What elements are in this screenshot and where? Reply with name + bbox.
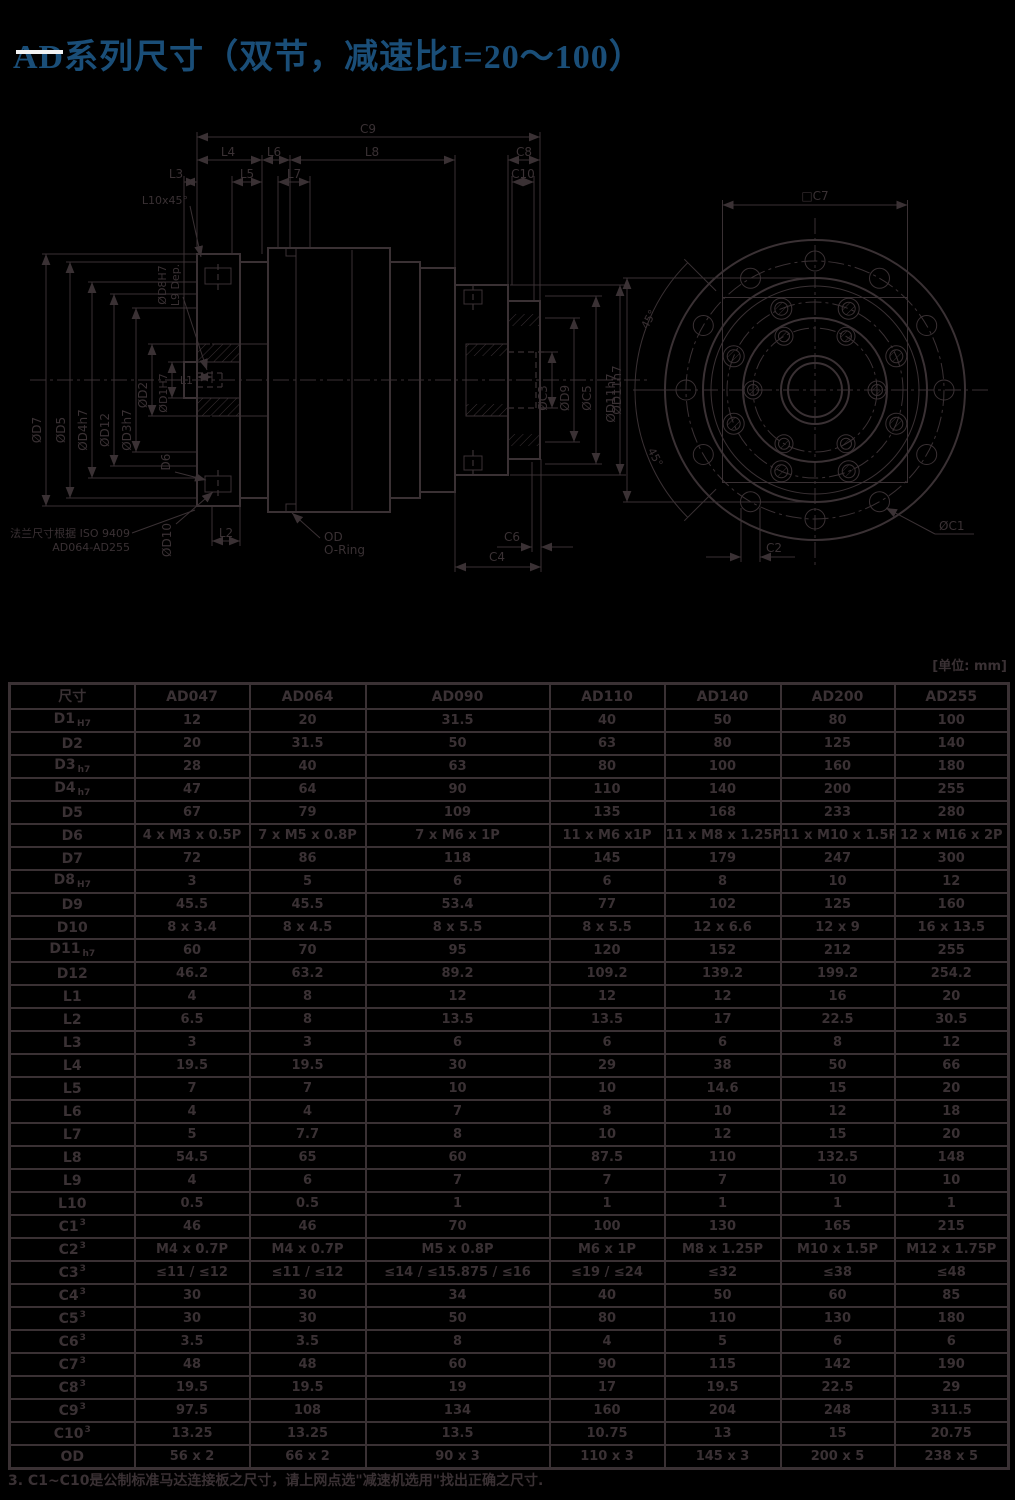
row-header: C73 bbox=[10, 1353, 135, 1376]
dim-label-d2: ØD2 bbox=[136, 382, 150, 408]
table-row: L333666812 bbox=[10, 1031, 1009, 1054]
table-cell: M8 x 1.25P bbox=[665, 1238, 781, 1261]
table-row: D1246.263.289.2109.2139.2199.2254.2 bbox=[10, 962, 1009, 985]
table-cell: 12 bbox=[135, 709, 250, 732]
dim-label-l6: L6 bbox=[267, 145, 281, 159]
table-cell: 132.5 bbox=[781, 1146, 895, 1169]
table-body: D1H7122031.5405080100D22031.550638012514… bbox=[10, 709, 1009, 1469]
dim-label-c6: C6 bbox=[504, 530, 520, 544]
row-header: L6 bbox=[10, 1100, 135, 1123]
column-header-model: AD064 bbox=[250, 684, 366, 710]
dim-label-c2: C2 bbox=[766, 541, 782, 555]
row-header: D12 bbox=[10, 962, 135, 985]
table-cell: 13.5 bbox=[550, 1008, 665, 1031]
dim-label-c5: ØC5 bbox=[580, 385, 594, 410]
table-cell: 15 bbox=[781, 1422, 895, 1445]
table-cell: 63 bbox=[550, 732, 665, 755]
table-cell: 160 bbox=[550, 1399, 665, 1422]
oring-label-oring: O-Ring bbox=[324, 543, 365, 557]
table-cell: 30 bbox=[250, 1284, 366, 1307]
table-cell: 8 bbox=[250, 985, 366, 1008]
oring-label-od: OD bbox=[324, 530, 343, 544]
table-row: D64 x M3 x 0.5P7 x M5 x 0.8P7 x M6 x 1P1… bbox=[10, 824, 1009, 847]
row-header: D11h7 bbox=[10, 939, 135, 962]
table-cell: 4 bbox=[550, 1330, 665, 1353]
table-cell: 50 bbox=[781, 1054, 895, 1077]
table-cell: 19 bbox=[366, 1376, 550, 1399]
table-cell: 8 x 4.5 bbox=[250, 916, 366, 939]
table-cell: 87.5 bbox=[550, 1146, 665, 1169]
table-cell: 152 bbox=[665, 939, 781, 962]
table-row: L100.50.511111 bbox=[10, 1192, 1009, 1215]
front-view: □C7 ØD11h7 45° 45° C2 ØC1 bbox=[610, 189, 988, 565]
dim-label-c4: C4 bbox=[489, 550, 505, 564]
table-cell: 19.5 bbox=[250, 1054, 366, 1077]
row-header: D2 bbox=[10, 732, 135, 755]
table-cell: 11 x M10 x 1.5P bbox=[781, 824, 895, 847]
table-cell: 8 x 5.5 bbox=[550, 916, 665, 939]
dim-label-l3: L3 bbox=[169, 167, 183, 181]
dim-label-d11-front: ØD11h7 bbox=[610, 365, 624, 414]
table-cell: 125 bbox=[781, 732, 895, 755]
footnote: 3. C1~C10是公制标准马达连接板之尺寸，请上网点选"减速机选用"找出正确之… bbox=[8, 1470, 543, 1490]
row-header: L4 bbox=[10, 1054, 135, 1077]
table-cell: ≤11 / ≤12 bbox=[250, 1261, 366, 1284]
table-cell: 31.5 bbox=[250, 732, 366, 755]
row-header: D1H7 bbox=[10, 709, 135, 732]
table-cell: 95 bbox=[366, 939, 550, 962]
row-header: C33 bbox=[10, 1261, 135, 1284]
table-cell: 179 bbox=[665, 847, 781, 870]
flange-note-line1: 法兰尺寸根据 ISO 9409 bbox=[10, 526, 130, 540]
table-cell: 66 x 2 bbox=[250, 1445, 366, 1469]
table-cell: 1 bbox=[550, 1192, 665, 1215]
table-cell: 47 bbox=[135, 778, 250, 801]
table-cell: 10 bbox=[665, 1100, 781, 1123]
table-cell: 12 x 6.6 bbox=[665, 916, 781, 939]
table-cell: 13.5 bbox=[366, 1008, 550, 1031]
table-cell: M6 x 1P bbox=[550, 1238, 665, 1261]
table-cell: 50 bbox=[665, 1284, 781, 1307]
table-cell: 8 bbox=[250, 1008, 366, 1031]
table-cell: 14.6 bbox=[665, 1077, 781, 1100]
table-cell: 0.5 bbox=[135, 1192, 250, 1215]
column-header-dimension: 尺寸 bbox=[10, 684, 135, 710]
table-cell: 13.25 bbox=[135, 1422, 250, 1445]
column-header-model: AD140 bbox=[665, 684, 781, 710]
row-header: L10 bbox=[10, 1192, 135, 1215]
table-cell: 20 bbox=[250, 709, 366, 732]
table-cell: ≤11 / ≤12 bbox=[135, 1261, 250, 1284]
table-cell: 7 x M6 x 1P bbox=[366, 824, 550, 847]
table-cell: 64 bbox=[250, 778, 366, 801]
table-cell: 89.2 bbox=[366, 962, 550, 985]
table-cell: 7 bbox=[135, 1077, 250, 1100]
table-cell: 212 bbox=[781, 939, 895, 962]
table-cell: 7 bbox=[665, 1169, 781, 1192]
table-cell: M10 x 1.5P bbox=[781, 1238, 895, 1261]
table-cell: 6 bbox=[550, 870, 665, 893]
table-cell: 6 bbox=[250, 1169, 366, 1192]
table-row: C13464670100130165215 bbox=[10, 1215, 1009, 1238]
row-header: C103 bbox=[10, 1422, 135, 1445]
row-header: L9 bbox=[10, 1169, 135, 1192]
row-header: OD bbox=[10, 1445, 135, 1469]
table-cell: 7.7 bbox=[250, 1123, 366, 1146]
table-cell: 46.2 bbox=[135, 962, 250, 985]
table-cell: 1 bbox=[895, 1192, 1009, 1215]
table-cell: 1 bbox=[665, 1192, 781, 1215]
table-cell: 108 bbox=[250, 1399, 366, 1422]
table-cell: 50 bbox=[366, 732, 550, 755]
table-cell: ≤48 bbox=[895, 1261, 1009, 1284]
table-cell: ≤14 / ≤15.875 / ≤16 bbox=[366, 1261, 550, 1284]
table-row: D108 x 3.48 x 4.58 x 5.58 x 5.512 x 6.61… bbox=[10, 916, 1009, 939]
table-cell: 110 bbox=[665, 1146, 781, 1169]
table-row: C23M4 x 0.7PM4 x 0.7PM5 x 0.8PM6 x 1PM8 … bbox=[10, 1238, 1009, 1261]
dim-label-c10: C10 bbox=[511, 167, 535, 181]
table-cell: 200 x 5 bbox=[781, 1445, 895, 1469]
table-cell: 4 bbox=[135, 1169, 250, 1192]
table-cell: 85 bbox=[895, 1284, 1009, 1307]
table-cell: 45.5 bbox=[250, 893, 366, 916]
table-cell: 247 bbox=[781, 847, 895, 870]
table-row: C9397.5108134160204248311.5 bbox=[10, 1399, 1009, 1422]
table-cell: 77 bbox=[550, 893, 665, 916]
table-cell: 148 bbox=[895, 1146, 1009, 1169]
table-cell: 30 bbox=[250, 1307, 366, 1330]
table-cell: 102 bbox=[665, 893, 781, 916]
table-cell: 13 bbox=[665, 1422, 781, 1445]
table-row: C33≤11 / ≤12≤11 / ≤12≤14 / ≤15.875 / ≤16… bbox=[10, 1261, 1009, 1284]
table-cell: 11 x M8 x 1.25P bbox=[665, 824, 781, 847]
table-cell: 17 bbox=[550, 1376, 665, 1399]
table-cell: 30 bbox=[366, 1054, 550, 1077]
table-cell: 12 bbox=[366, 985, 550, 1008]
table-cell: 1 bbox=[781, 1192, 895, 1215]
angle-label-45-upper: 45° bbox=[639, 308, 660, 331]
table-cell: 79 bbox=[250, 801, 366, 824]
dim-label-d9: ØD9 bbox=[558, 385, 572, 411]
table-cell: 22.5 bbox=[781, 1376, 895, 1399]
table-cell: 280 bbox=[895, 801, 1009, 824]
table-cell: M12 x 1.75P bbox=[895, 1238, 1009, 1261]
table-cell: 90 bbox=[550, 1353, 665, 1376]
section-view: C9 L4 L6 L8 C8 L3 L5 L7 C10 L10x45° ØD7 … bbox=[10, 122, 648, 572]
table-cell: 165 bbox=[781, 1215, 895, 1238]
table-cell: 142 bbox=[781, 1353, 895, 1376]
table-row: D56779109135168233280 bbox=[10, 801, 1009, 824]
dim-label-l10: L10x45° bbox=[142, 194, 188, 207]
dim-label-d8h7: ØD8H7 bbox=[156, 265, 169, 304]
column-header-model: AD200 bbox=[781, 684, 895, 710]
table-cell: 50 bbox=[366, 1307, 550, 1330]
catalog-page: AD系列尺寸（双节，减速比I=20～100） bbox=[0, 0, 1015, 1500]
table-cell: 17 bbox=[665, 1008, 781, 1031]
row-header: D9 bbox=[10, 893, 135, 916]
column-header-model: AD255 bbox=[895, 684, 1009, 710]
dim-label-l5: L5 bbox=[240, 167, 254, 181]
table-cell: 29 bbox=[550, 1054, 665, 1077]
table-cell: 70 bbox=[250, 939, 366, 962]
table-cell: 16 x 13.5 bbox=[895, 916, 1009, 939]
table-cell: 60 bbox=[366, 1146, 550, 1169]
table-cell: 238 x 5 bbox=[895, 1445, 1009, 1469]
table-cell: 6 bbox=[366, 1031, 550, 1054]
row-header: L1 bbox=[10, 985, 135, 1008]
oring-groove-bottom bbox=[286, 504, 296, 512]
table-cell: 8 bbox=[665, 870, 781, 893]
table-cell: 3 bbox=[135, 870, 250, 893]
table-row: L419.519.53029385066 bbox=[10, 1054, 1009, 1077]
table-cell: 110 bbox=[550, 778, 665, 801]
table-cell: 168 bbox=[665, 801, 781, 824]
angle-label-45-lower: 45° bbox=[645, 446, 666, 469]
table-cell: 10 bbox=[781, 1169, 895, 1192]
table-cell: 3 bbox=[135, 1031, 250, 1054]
row-header: C63 bbox=[10, 1330, 135, 1353]
table-cell: 12 x M16 x 2P bbox=[895, 824, 1009, 847]
table-cell: 8 x 3.4 bbox=[135, 916, 250, 939]
table-row: L757.7810121520 bbox=[10, 1123, 1009, 1146]
table-cell: 80 bbox=[550, 755, 665, 778]
table-row: C4330303440506085 bbox=[10, 1284, 1009, 1307]
table-cell: 8 x 5.5 bbox=[366, 916, 550, 939]
table-cell: 10 bbox=[550, 1123, 665, 1146]
page-title: AD系列尺寸（双节，减速比I=20～100） bbox=[13, 29, 644, 78]
table-cell: 8 bbox=[366, 1330, 550, 1353]
table-cell: 100 bbox=[895, 709, 1009, 732]
table-cell: 160 bbox=[895, 893, 1009, 916]
table-cell: 255 bbox=[895, 939, 1009, 962]
dim-label-l8: L8 bbox=[365, 145, 379, 159]
table-cell: 10 bbox=[550, 1077, 665, 1100]
table-cell: 233 bbox=[781, 801, 895, 824]
table-row: D945.545.553.477102125160 bbox=[10, 893, 1009, 916]
table-cell: 200 bbox=[781, 778, 895, 801]
table-cell: 6 bbox=[665, 1031, 781, 1054]
table-cell: 12 bbox=[550, 985, 665, 1008]
table-cell: 6 bbox=[366, 870, 550, 893]
table-cell: M4 x 0.7P bbox=[135, 1238, 250, 1261]
table-cell: 109 bbox=[366, 801, 550, 824]
row-header: L5 bbox=[10, 1077, 135, 1100]
row-header: C53 bbox=[10, 1307, 135, 1330]
table-row: C10313.2513.2513.510.75131520.75 bbox=[10, 1422, 1009, 1445]
dim-label-d3h7: ØD3h7 bbox=[120, 409, 134, 451]
dim-label-d10: ØD10 bbox=[160, 523, 174, 557]
title-underline bbox=[16, 50, 63, 54]
section-view-details bbox=[197, 248, 508, 512]
table-cell: 65 bbox=[250, 1146, 366, 1169]
oring-groove-top bbox=[286, 248, 296, 256]
table-row: L26.5813.513.51722.530.5 bbox=[10, 1008, 1009, 1031]
table-cell: 130 bbox=[665, 1215, 781, 1238]
table-cell: 3.5 bbox=[250, 1330, 366, 1353]
dim-label-c8: C8 bbox=[516, 145, 532, 159]
table-row: OD56 x 266 x 290 x 3110 x 3145 x 3200 x … bbox=[10, 1445, 1009, 1469]
table-cell: 134 bbox=[366, 1399, 550, 1422]
table-cell: 7 bbox=[366, 1169, 550, 1192]
dim-label-d1h7: ØD1H7 bbox=[157, 373, 170, 412]
table-cell: 135 bbox=[550, 801, 665, 824]
technical-drawing: C9 L4 L6 L8 C8 L3 L5 L7 C10 L10x45° ØD7 … bbox=[0, 100, 1015, 648]
table-cell: 11 x M6 x1P bbox=[550, 824, 665, 847]
table-cell: 6.5 bbox=[135, 1008, 250, 1031]
row-header: D4h7 bbox=[10, 778, 135, 801]
table-cell: 6 bbox=[895, 1330, 1009, 1353]
table-cell: 8 bbox=[550, 1100, 665, 1123]
table-cell: 5 bbox=[665, 1330, 781, 1353]
table-cell: 45.5 bbox=[135, 893, 250, 916]
table-cell: 28 bbox=[135, 755, 250, 778]
table-cell: M4 x 0.7P bbox=[250, 1238, 366, 1261]
table-cell: 10 bbox=[781, 870, 895, 893]
dim-label-c1: ØC1 bbox=[939, 519, 964, 533]
table-cell: 46 bbox=[250, 1215, 366, 1238]
table-cell: 50 bbox=[665, 709, 781, 732]
table-row: D8H7356681012 bbox=[10, 870, 1009, 893]
table-cell: 100 bbox=[550, 1215, 665, 1238]
table-cell: 4 x M3 x 0.5P bbox=[135, 824, 250, 847]
table-cell: 63 bbox=[366, 755, 550, 778]
dim-label-d7: ØD7 bbox=[30, 417, 44, 443]
table-row: C7348486090115142190 bbox=[10, 1353, 1009, 1376]
table-cell: 1 bbox=[366, 1192, 550, 1215]
row-header: D6 bbox=[10, 824, 135, 847]
table-cell: 19.5 bbox=[135, 1054, 250, 1077]
table-cell: M5 x 0.8P bbox=[366, 1238, 550, 1261]
row-header: D3h7 bbox=[10, 755, 135, 778]
dim-label-d5: ØD5 bbox=[54, 417, 68, 443]
table-cell: 54.5 bbox=[135, 1146, 250, 1169]
table-cell: 80 bbox=[665, 732, 781, 755]
table-cell: 13.25 bbox=[250, 1422, 366, 1445]
table-cell: 38 bbox=[665, 1054, 781, 1077]
table-cell: ≤32 bbox=[665, 1261, 781, 1284]
table-cell: 255 bbox=[895, 778, 1009, 801]
table-cell: 70 bbox=[366, 1215, 550, 1238]
table-cell: 311.5 bbox=[895, 1399, 1009, 1422]
table-cell: 53.4 bbox=[366, 893, 550, 916]
dim-label-c7: □C7 bbox=[801, 189, 828, 203]
table-cell: 29 bbox=[895, 1376, 1009, 1399]
table-cell: 118 bbox=[366, 847, 550, 870]
table-cell: 248 bbox=[781, 1399, 895, 1422]
table-cell: 66 bbox=[895, 1054, 1009, 1077]
table-cell: 60 bbox=[135, 939, 250, 962]
dim-label-l1: L1 bbox=[180, 374, 193, 387]
table-cell: 15 bbox=[781, 1077, 895, 1100]
dim-label-c3: ØC3 bbox=[536, 385, 550, 410]
table-row: D77286118145179247300 bbox=[10, 847, 1009, 870]
table-row: L9467771010 bbox=[10, 1169, 1009, 1192]
table-cell: 140 bbox=[665, 778, 781, 801]
table-cell: 63.2 bbox=[250, 962, 366, 985]
table-row: D1H7122031.5405080100 bbox=[10, 709, 1009, 732]
table-cell: 4 bbox=[135, 1100, 250, 1123]
table-cell: 12 bbox=[665, 985, 781, 1008]
table-cell: 10.75 bbox=[550, 1422, 665, 1445]
table-cell: 12 x 9 bbox=[781, 916, 895, 939]
row-header: D7 bbox=[10, 847, 135, 870]
column-header-model: AD090 bbox=[366, 684, 550, 710]
table-cell: 204 bbox=[665, 1399, 781, 1422]
table-cell: 7 bbox=[550, 1169, 665, 1192]
table-cell: 160 bbox=[781, 755, 895, 778]
row-header: L3 bbox=[10, 1031, 135, 1054]
row-header: C13 bbox=[10, 1215, 135, 1238]
table-header-row: 尺寸AD047AD064AD090AD110AD140AD200AD255 bbox=[10, 684, 1009, 710]
flange-note-line2: AD064-AD255 bbox=[52, 541, 130, 554]
table-cell: 0.5 bbox=[250, 1192, 366, 1215]
table-cell: 60 bbox=[781, 1284, 895, 1307]
table-cell: 20 bbox=[895, 1123, 1009, 1146]
table-row: C5330305080110130180 bbox=[10, 1307, 1009, 1330]
table-cell: 110 x 3 bbox=[550, 1445, 665, 1469]
table-cell: 139.2 bbox=[665, 962, 781, 985]
table-cell: 180 bbox=[895, 755, 1009, 778]
table-cell: 4 bbox=[250, 1100, 366, 1123]
dim-label-d6: D6 bbox=[159, 454, 173, 471]
table-cell: 7 bbox=[366, 1100, 550, 1123]
table-cell: 254.2 bbox=[895, 962, 1009, 985]
table-cell: 7 bbox=[250, 1077, 366, 1100]
unit-label: [单位: mm] bbox=[932, 655, 1007, 674]
table-cell: 190 bbox=[895, 1353, 1009, 1376]
table-row: D11h7607095120152212255 bbox=[10, 939, 1009, 962]
dim-label-d12: ØD12 bbox=[98, 413, 112, 447]
table-cell: 90 bbox=[366, 778, 550, 801]
column-header-model: AD110 bbox=[550, 684, 665, 710]
section-hidden-lines bbox=[197, 264, 545, 498]
row-header: D10 bbox=[10, 916, 135, 939]
table-cell: 56 x 2 bbox=[135, 1445, 250, 1469]
table-cell: 7 x M5 x 0.8P bbox=[250, 824, 366, 847]
table-cell: 180 bbox=[895, 1307, 1009, 1330]
table-row: D3h728406380100160180 bbox=[10, 755, 1009, 778]
dim-label-l2: L2 bbox=[219, 526, 233, 540]
table-cell: 100 bbox=[665, 755, 781, 778]
table-cell: 6 bbox=[550, 1031, 665, 1054]
table-cell: 97.5 bbox=[135, 1399, 250, 1422]
table-cell: 48 bbox=[135, 1353, 250, 1376]
table-cell: 145 bbox=[550, 847, 665, 870]
table-cell: 80 bbox=[550, 1307, 665, 1330]
table-cell: 67 bbox=[135, 801, 250, 824]
table-cell: 8 bbox=[366, 1123, 550, 1146]
table-cell: 20 bbox=[895, 985, 1009, 1008]
table-cell: 30.5 bbox=[895, 1008, 1009, 1031]
table-cell: 8 bbox=[781, 1031, 895, 1054]
table-cell: 40 bbox=[250, 755, 366, 778]
table-cell: 3.5 bbox=[135, 1330, 250, 1353]
table-cell: 31.5 bbox=[366, 709, 550, 732]
table-cell: 72 bbox=[135, 847, 250, 870]
table-cell: 18 bbox=[895, 1100, 1009, 1123]
table-cell: 125 bbox=[781, 893, 895, 916]
dim-label-l4: L4 bbox=[221, 145, 235, 159]
table-cell: 86 bbox=[250, 847, 366, 870]
table-cell: ≤38 bbox=[781, 1261, 895, 1284]
table-cell: 19.5 bbox=[135, 1376, 250, 1399]
table-cell: 19.5 bbox=[665, 1376, 781, 1399]
table-cell: 40 bbox=[550, 709, 665, 732]
table-cell: 22.5 bbox=[781, 1008, 895, 1031]
table-cell: 16 bbox=[781, 985, 895, 1008]
table-cell: 4 bbox=[135, 985, 250, 1008]
table-row: D4h7476490110140200255 bbox=[10, 778, 1009, 801]
